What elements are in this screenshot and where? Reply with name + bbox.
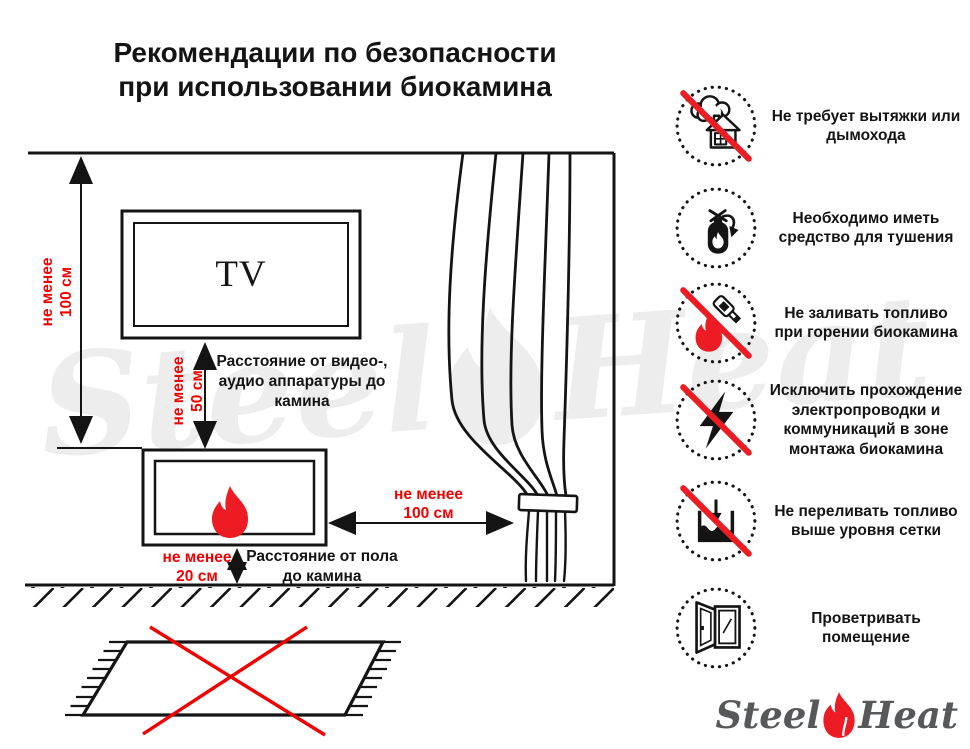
logo-steel-text: Steel — [715, 693, 820, 737]
no-wiring-icon — [672, 376, 760, 464]
logo-flame-icon — [818, 690, 860, 740]
tv-label: TV — [122, 211, 360, 338]
no-chimney-icon — [672, 82, 760, 170]
extinguisher-icon — [672, 184, 760, 272]
rule-no-overfill: Не переливать топливо выше уровня сетки — [672, 476, 964, 566]
no-overfill-icon — [672, 477, 760, 565]
dimension-fireplace-to-curtain-label: не менее 100 см — [376, 485, 481, 523]
page-title-line1: Рекомендации по безопасности — [25, 36, 645, 70]
rule-text: Необходимо иметь средство для тушения — [768, 209, 964, 248]
dimension-value: 20 см — [153, 567, 241, 586]
rule-text: Не требует вытяжки или дымохода — [768, 107, 964, 146]
steelheat-logo: Steel Heat — [715, 690, 958, 740]
page-title-line2: при использовании биокамина — [25, 70, 645, 104]
dimension-value: 100 см — [376, 504, 481, 523]
dimension-text: не менее — [169, 333, 188, 449]
dimension-value: 50 см — [188, 333, 207, 449]
dimension-text: не менее — [153, 548, 241, 567]
dimension-wall-to-fireplace-label: не менее 100 см — [38, 231, 76, 353]
dimension-text: не менее — [376, 485, 481, 504]
rule-text: Проветривать помещение — [796, 609, 936, 648]
floor-hatching — [25, 587, 614, 607]
extinguisher — [708, 211, 739, 254]
rule-no-wiring: Исключить прохождение электропроводки и … — [672, 375, 964, 465]
label-floor-distance: Расстояние от пола до камина — [246, 547, 398, 587]
rule-ventilate: Проветривать помещение — [672, 583, 964, 673]
logo-heat-text: Heat — [858, 693, 958, 737]
dimension-text: не менее — [38, 231, 57, 353]
dimension-floor-to-fireplace-label: не менее 20 см — [153, 548, 241, 586]
rule-no-chimney: Не требует вытяжки или дымохода — [672, 81, 964, 171]
dimension-tv-to-fireplace-label: не менее 50 см — [169, 333, 207, 449]
label-av-distance: Расстояние от видео-, аудио аппаратуры д… — [209, 352, 395, 412]
dimension-value: 100 см — [57, 231, 76, 353]
rule-text: Не переливать топливо выше уровня сетки — [768, 502, 964, 541]
ventilate-icon — [672, 584, 760, 672]
carpet-drawing — [65, 627, 401, 735]
rule-text: Не заливать топливо при горении биокамин… — [768, 304, 964, 343]
rule-text: Исключить прохождение электропроводки и … — [768, 381, 964, 459]
rule-extinguisher: Необходимо иметь средство для тушения — [672, 183, 964, 273]
curtain-tie — [519, 494, 578, 512]
page-title: Рекомендации по безопасности при использ… — [25, 36, 645, 104]
window — [697, 602, 740, 652]
fireplace-outline — [143, 450, 326, 545]
rule-no-refuel-burning: Не заливать топливо при горении биокамин… — [672, 278, 964, 368]
no-refuel-burning-icon — [672, 279, 760, 367]
